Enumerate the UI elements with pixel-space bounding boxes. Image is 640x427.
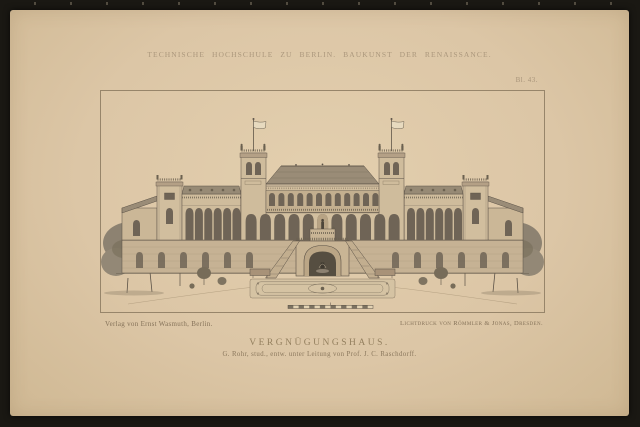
plate-number: Bl. 43. bbox=[516, 76, 538, 84]
wing-right bbox=[404, 186, 463, 240]
caption-printer: Lichtdruck von Römmler & Jonas, Dresden. bbox=[400, 320, 543, 327]
scanned-plate-photo: TECHNISCHE HOCHSCHULE ZU BERLIN. BAUKUNS… bbox=[0, 0, 640, 427]
caption-publisher: Verlag von Ernst Wasmuth, Berlin. bbox=[105, 320, 213, 328]
wing-left bbox=[182, 186, 241, 240]
central-block bbox=[240, 144, 405, 240]
paper-sheet: TECHNISCHE HOCHSCHULE ZU BERLIN. BAUKUNS… bbox=[10, 10, 629, 416]
flags bbox=[253, 118, 405, 151]
scale-bar bbox=[288, 303, 373, 309]
scan-background-specks bbox=[0, 2, 640, 5]
building-elevation-illustration bbox=[100, 90, 545, 313]
work-subtitle: G. Rohr, stud., entw. unter Leitung von … bbox=[10, 351, 629, 358]
series-title: TECHNISCHE HOCHSCHULE ZU BERLIN. BAUKUNS… bbox=[10, 50, 629, 59]
work-title: VERGNÜGUNGSHAUS. bbox=[10, 338, 629, 348]
